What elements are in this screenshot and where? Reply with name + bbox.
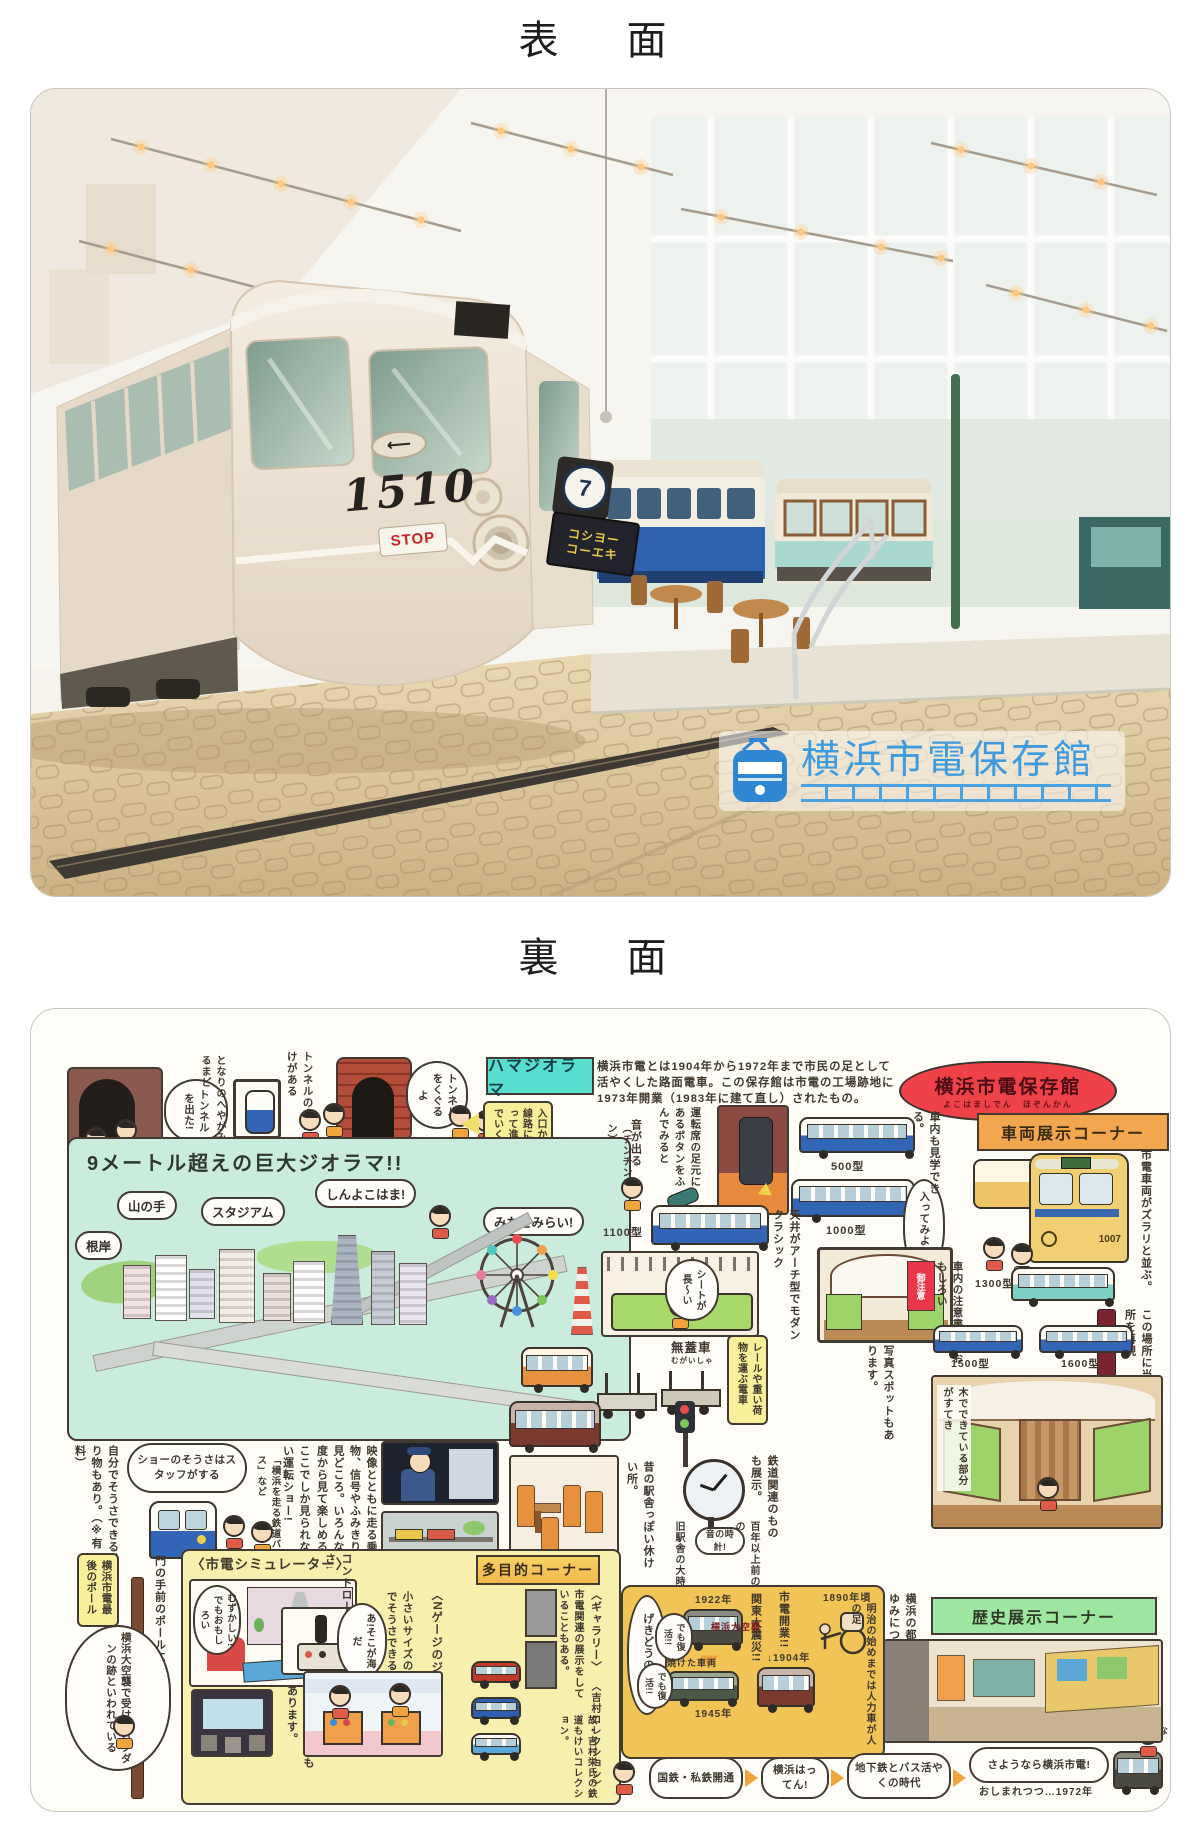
year-1945: 1945年 <box>695 1707 732 1722</box>
green-pole <box>951 374 960 629</box>
year-1922: 1922年 <box>695 1593 732 1608</box>
note-show: ここでしか見られない運転ショー! <box>279 1445 312 1557</box>
diorama-building <box>155 1255 187 1321</box>
car-number-1007: 1007 <box>1099 1234 1121 1245</box>
history-corner-header: 歴史展示コーナー <box>931 1597 1157 1635</box>
kid-icon <box>223 1515 245 1549</box>
diorama-building <box>263 1273 291 1321</box>
label-1300: 1300型 <box>975 1277 1014 1293</box>
kid-icon <box>613 1761 635 1795</box>
bubble-seat: シートが長〜い <box>665 1259 719 1321</box>
note-inside: 車内も見学できる。 <box>909 1111 942 1209</box>
diorama-building <box>219 1249 255 1323</box>
note-rickshaw: 明治の始めまでは人力車が人の足 <box>847 1603 877 1749</box>
history-room-pic <box>883 1639 1163 1743</box>
button-floor-pic <box>717 1105 789 1215</box>
pole-tag: 横浜市電最後のポール <box>77 1553 119 1627</box>
place-shinyokohama: しんよこはま! <box>315 1179 416 1208</box>
tram-500-icon <box>799 1117 915 1153</box>
vehicle-corner-header: 車両展示コーナー <box>977 1113 1169 1151</box>
diorama-building <box>293 1261 325 1323</box>
tram-1000-icon <box>791 1179 915 1217</box>
diorama-building <box>189 1269 215 1319</box>
tram-logo-icon <box>729 738 791 804</box>
kid-icon <box>621 1177 643 1211</box>
diorama-building <box>371 1251 395 1325</box>
window-tram-icon <box>233 1079 281 1139</box>
flow-kokutetsu: 国鉄・私鉄開通 <box>649 1757 743 1799</box>
place-stadium: スタジアム <box>201 1197 285 1226</box>
hamadiorama-sign: ハマジオラマ <box>486 1057 594 1095</box>
note-ceiling: 天井がアーチ型でモダンクラシック <box>769 1209 802 1343</box>
museum-logo-title: 横浜市電保存館 <box>801 740 1111 783</box>
ngauge-console-pic <box>303 1671 443 1757</box>
right-arrow-icon <box>745 1769 758 1787</box>
gallery-header: 〈ギャラリー〉 <box>587 1589 604 1675</box>
museum-photo: 1510 ⟵ STOP 7 コシヨー コーエキ 横浜市電保存館 <box>30 88 1171 897</box>
diorama-headline: 9メートル超えの巨大ジオラマ!! <box>87 1149 403 1179</box>
note-collection: 故・吉村栄氏の鉄道もけいコレクション。 <box>555 1715 598 1799</box>
first-tram-icon <box>757 1667 815 1707</box>
teal-tram <box>775 479 933 583</box>
museum-logo: 横浜市電保存館 <box>719 731 1125 811</box>
note-self-operate: 自分でそうさできる乗り物もあり。（※有料） <box>71 1445 121 1567</box>
note-sound: 音が出る <box>627 1119 644 1179</box>
kid-icon <box>113 1715 135 1749</box>
note-wood: 木でできている部分がすてき <box>937 1385 971 1491</box>
flyer-sheet: 表 面 <box>0 0 1199 1828</box>
kid-icon <box>323 1103 345 1137</box>
note-rest: 昔の駅舎っぽい休けい所。 <box>623 1461 656 1569</box>
retro-tram-icon <box>521 1347 593 1387</box>
label-1000: 1000型 <box>826 1223 866 1240</box>
gallery-photo-icon <box>525 1589 557 1637</box>
badge-title: 横浜市電保存館 <box>934 1072 1081 1099</box>
bubble-revive1: でも復活!! <box>655 1613 693 1661</box>
flow-subway: 地下鉄とバス活やくの時代 <box>847 1753 951 1799</box>
kid-icon <box>429 1205 451 1239</box>
flatcar-pic <box>597 1371 723 1423</box>
model-train-collection-icon <box>471 1661 521 1755</box>
label-open: 市電開業!! <box>775 1591 792 1649</box>
note-button: 運転席の足元にあるボタンをふんでみると <box>655 1107 702 1195</box>
place-yamanote: 山の手 <box>117 1191 177 1220</box>
diorama-building <box>399 1263 427 1325</box>
note-gallery: 市電関連の展示をしていることもある。 <box>555 1589 585 1709</box>
rail-track-icon <box>801 784 1111 802</box>
diorama-building <box>123 1265 151 1319</box>
right-arrow-icon <box>831 1769 844 1787</box>
note-view: 映像とともに走る乗り物、信号やふみきりも見どころ。いろんな角度から見て楽しめる。 <box>313 1445 379 1565</box>
year-1904: ↓1904年 <box>767 1651 810 1666</box>
left-arrow-icon <box>461 1113 479 1135</box>
tram-1300-icon <box>1011 1267 1115 1301</box>
brick-tunnel-icon <box>336 1057 412 1141</box>
note-lineup: 市電車両がズラリと並ぶ。 <box>1137 1149 1154 1307</box>
illustrated-guide: トンネルを出た! となりのへやがみえるまど トンネルの中にもしかけがある トンネ… <box>30 1008 1171 1812</box>
notice-tag: 御注意 <box>907 1261 935 1311</box>
rest-area-pic <box>509 1455 619 1555</box>
front-side-title: 表 面 <box>0 8 1199 66</box>
badge-furigana: よこはましでん ほぞんかん <box>943 1099 1073 1110</box>
label-1600: 1600型 <box>1061 1357 1100 1373</box>
station-clock-icon <box>683 1459 745 1521</box>
stop-sign: STOP <box>378 522 448 557</box>
label-1500: 1500型 <box>951 1357 990 1373</box>
tram-1100-icon <box>651 1205 769 1245</box>
flow-hatten: 横浜はってん! <box>761 1757 829 1799</box>
label-mugaisha-kana: むがいしゃ <box>671 1355 714 1366</box>
label-1100: 1100型 <box>603 1225 643 1242</box>
back-side-title: 裏 面 <box>0 925 1199 983</box>
place-negishi: 根岸 <box>75 1231 122 1260</box>
label-air-raid: 横浜大空襲 <box>711 1621 761 1635</box>
intro-text: 横浜市電とは1904年から1972年まで市民の足として活やくした路面電車。この保… <box>597 1059 897 1108</box>
retro-tram-icon <box>509 1401 601 1447</box>
note-photospot: 写真スポットもあります。 <box>863 1345 896 1445</box>
theater-pic <box>191 1689 273 1757</box>
kid-icon <box>983 1237 1005 1271</box>
burned-tram-icon <box>667 1671 739 1701</box>
signal-head-icon <box>675 1401 695 1433</box>
flow-goodbye: さようなら横浜市電! <box>969 1747 1109 1783</box>
right-arrow-icon <box>953 1769 966 1787</box>
gallery-photo-icon <box>525 1641 557 1689</box>
bubble-staff: ショーのそうさはスタッフがする <box>127 1443 247 1493</box>
bubble-sea: あ!そこが海だ <box>337 1603 387 1679</box>
goodbye-sub: おしまれつつ…1972年 <box>979 1785 1093 1800</box>
note-mugaisha: レールや重い荷物を運ぶ電車 <box>727 1335 768 1425</box>
bubble-revive2: でも復活!! <box>637 1663 673 1709</box>
tram-1500-icon <box>933 1325 1023 1353</box>
ferris-wheel-icon <box>469 1231 565 1331</box>
tram-1600-icon <box>1039 1325 1133 1353</box>
label-burned: 焼けた車両 <box>667 1657 717 1671</box>
label-500: 500型 <box>831 1159 864 1176</box>
bubble-bomb: 横浜大空襲で受けたバクダンの跡といわれている <box>65 1625 171 1771</box>
bubble-hard: むずかしい!でもおもしろい <box>193 1585 241 1655</box>
driver-show-pic <box>381 1441 499 1505</box>
multi-header: 多目的コーナー <box>476 1555 600 1585</box>
